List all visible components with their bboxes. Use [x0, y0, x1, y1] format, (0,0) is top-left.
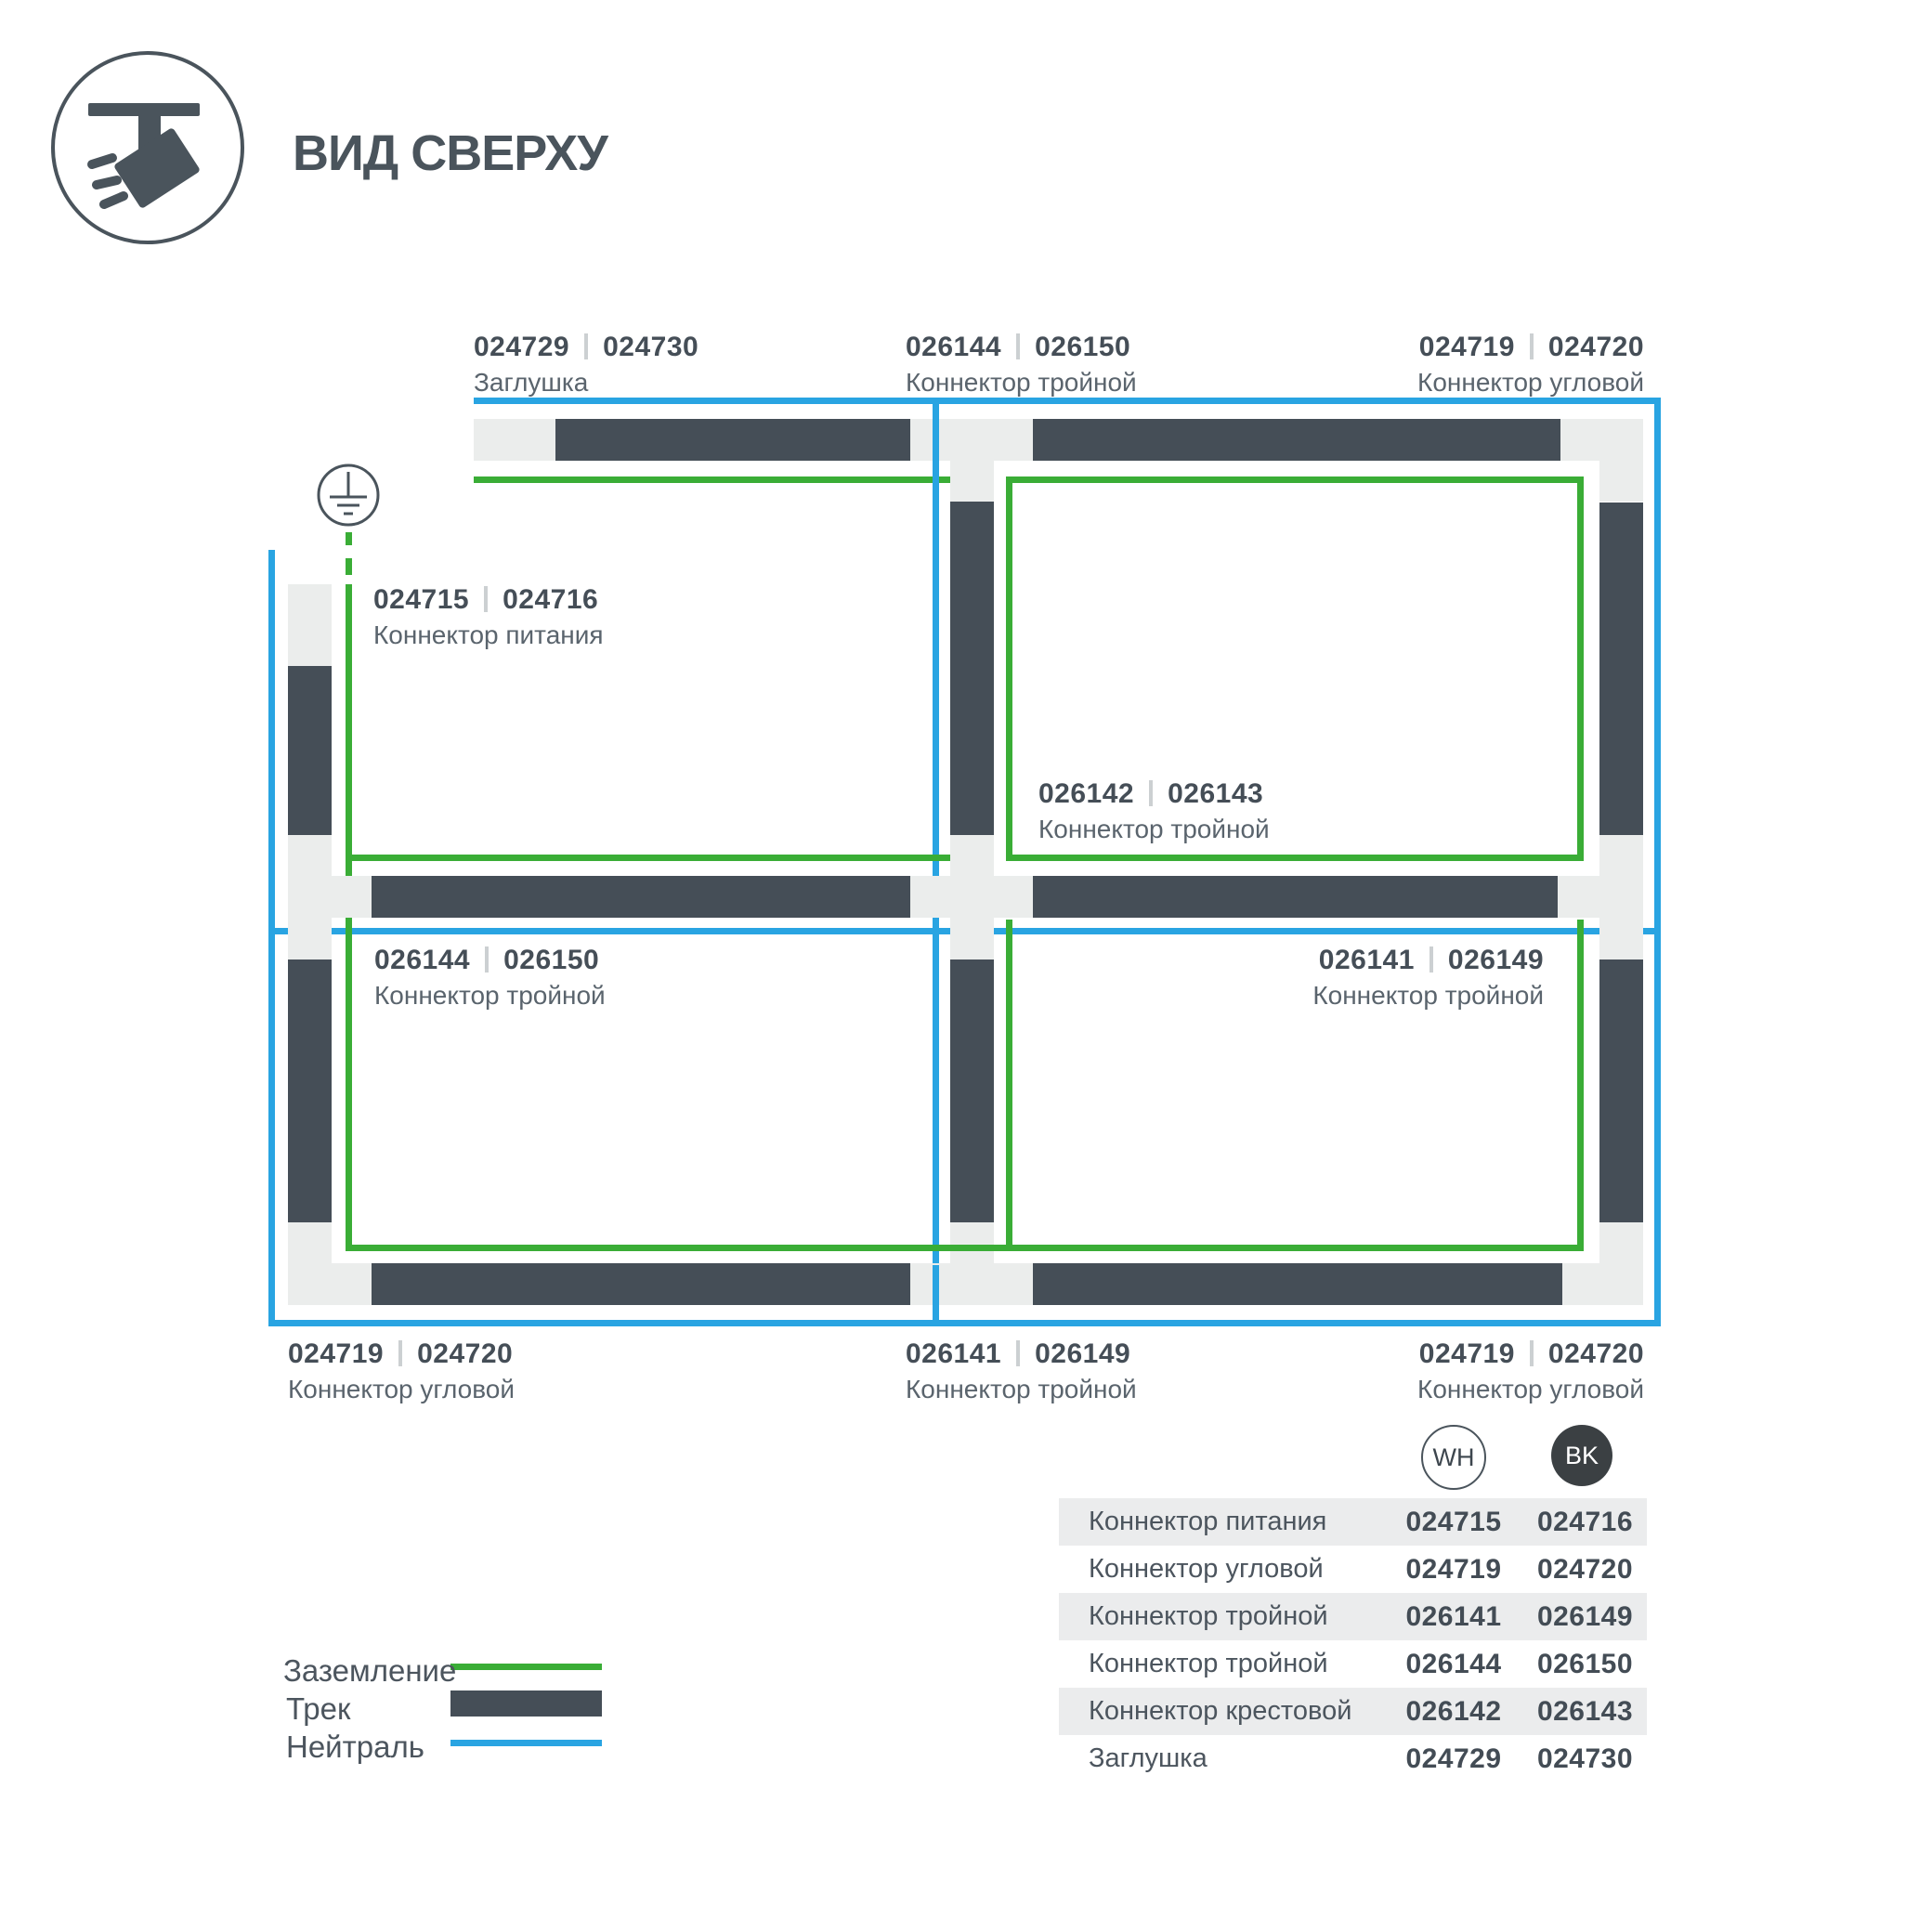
ground-line-over-bottom-stem: [950, 1245, 994, 1251]
page-title: ВИД СВЕРХУ: [293, 124, 607, 182]
track-segment: [555, 419, 910, 461]
track-segment: [1599, 503, 1643, 835]
ground-spine-vertical: [346, 584, 352, 1251]
neutral-line-over-top-connector: [933, 419, 939, 502]
label-t-connector-bottom: 026141026149 Коннектор тройной: [906, 1338, 1137, 1405]
t-connector-top: [910, 419, 1033, 461]
legend-ground-label: Заземление: [283, 1653, 456, 1689]
track-segment: [950, 959, 994, 1222]
legend-neutral-swatch: [450, 1740, 602, 1746]
label-corner-connector-bottomright: 024719024720 Коннектор угловой: [1417, 1338, 1644, 1405]
label-t-connector-top: 026144026150 Коннектор тройной: [906, 331, 1137, 398]
table-row: Коннектор питания 024715 024716: [1059, 1498, 1647, 1546]
label-cross-connector: 026142026143 Коннектор тройной: [1038, 777, 1270, 845]
table-row: Заглушка 024729 024730: [1059, 1735, 1647, 1782]
corner-connector-bottomleft: [288, 1222, 332, 1305]
earth-ground-icon: [316, 463, 381, 528]
label-name: Коннектор угловой: [1417, 1374, 1644, 1405]
label-codes: 024715024716: [373, 583, 604, 617]
label-codes: 024719024720: [288, 1338, 515, 1371]
ground-dash-1: [346, 532, 352, 545]
neutral-line-top: [474, 398, 1661, 404]
neutral-line-center-vertical: [933, 398, 939, 1326]
label-corner-connector-bottomleft: 024719024720 Коннектор угловой: [288, 1338, 515, 1405]
ground-line-bottomcell-right-vertical: [1577, 920, 1584, 1251]
code-separator: [1429, 946, 1433, 973]
t-connector-right-stem: [1558, 876, 1599, 918]
track-segment: [372, 876, 910, 918]
table-row: Коннектор крестовой 026142 026143: [1059, 1688, 1647, 1735]
track-segment: [1033, 419, 1560, 461]
legend-track-swatch: [450, 1690, 602, 1717]
table-row: Коннектор тройной 026144 026150: [1059, 1640, 1647, 1688]
label-codes: 026142026143: [1038, 777, 1270, 811]
corner-connector-bottomright: [1599, 1222, 1643, 1305]
legend-track-label: Трек: [286, 1691, 350, 1727]
variant-bk-badge: BK: [1551, 1425, 1612, 1486]
label-corner-connector-topright: 024719024720 Коннектор угловой: [1417, 331, 1644, 398]
label-name: Коннектор тройной: [906, 367, 1137, 398]
t-connector-right: [1599, 835, 1643, 959]
neutral-line-left: [268, 550, 275, 1326]
corner-connector-topright-leg: [1599, 461, 1643, 502]
corner-connector-topright: [1560, 419, 1643, 461]
code-separator: [1016, 1340, 1020, 1366]
code-separator: [1530, 333, 1534, 359]
corner-connector-bottomright-arm: [1562, 1263, 1599, 1305]
label-end-cap: 024729024730 Заглушка: [474, 331, 698, 398]
track-segment: [372, 1263, 910, 1305]
label-name: Коннектор тройной: [1038, 814, 1270, 845]
label-codes: 026144026150: [906, 331, 1137, 364]
code-separator: [1149, 780, 1153, 806]
neutral-line-right: [1654, 398, 1661, 1326]
neutral-line-over-bottom-connector: [933, 1265, 939, 1305]
neutral-line-bottom: [268, 1320, 1661, 1326]
track-segment: [288, 959, 332, 1222]
label-name: Коннектор угловой: [288, 1374, 515, 1405]
table-row: Коннектор тройной 026141 026149: [1059, 1593, 1647, 1640]
label-name: Коннектор питания: [373, 620, 604, 651]
label-t-connector-midleft: 026144026150 Коннектор тройной: [374, 944, 606, 1012]
track-segment: [1599, 959, 1643, 1222]
ground-line-bottomcell-left-vertical: [1006, 920, 1012, 1251]
label-name: Коннектор тройной: [374, 980, 606, 1012]
code-separator: [398, 1340, 402, 1366]
cross-connector-varm: [950, 835, 994, 959]
track-segment: [1033, 876, 1558, 918]
ground-dash-2: [346, 558, 352, 575]
variant-wh-badge: WH: [1421, 1425, 1486, 1490]
t-connector-bottom-stem: [950, 1222, 994, 1263]
label-codes: 026141026149: [906, 1338, 1137, 1371]
label-t-connector-midright: 026141026149 Коннектор тройной: [1312, 944, 1544, 1012]
code-separator: [485, 946, 489, 973]
corner-connector-bottomleft-arm: [332, 1263, 372, 1305]
track-segment: [950, 502, 994, 835]
parts-table: Коннектор питания 024715 024716 Коннекто…: [1059, 1498, 1647, 1782]
track-spotlight-icon: [46, 46, 250, 250]
label-name: Коннектор тройной: [1312, 980, 1544, 1012]
code-separator: [1016, 333, 1020, 359]
t-connector-left: [288, 835, 332, 959]
label-power-connector: 024715024716 Коннектор питания: [373, 583, 604, 651]
end-cap-connector: [474, 419, 555, 461]
code-separator: [584, 333, 588, 359]
power-connector: [288, 584, 332, 666]
table-row: Коннектор угловой 024719 024720: [1059, 1546, 1647, 1593]
t-connector-left-stem: [332, 876, 372, 918]
code-separator: [1530, 1340, 1534, 1366]
label-codes: 026144026150: [374, 944, 606, 977]
legend-ground-swatch: [450, 1664, 602, 1670]
label-name: Заглушка: [474, 367, 698, 398]
ground-line-topleft-bottom: [346, 855, 950, 861]
label-name: Коннектор тройной: [906, 1374, 1137, 1405]
track-segment: [288, 666, 332, 835]
label-codes: 024719024720: [1417, 331, 1644, 364]
label-codes: 024719024720: [1417, 1338, 1644, 1371]
label-codes: 024729024730: [474, 331, 698, 364]
t-connector-bottom: [910, 1263, 1033, 1305]
legend-neutral-label: Нейтраль: [286, 1730, 424, 1765]
t-connector-top-stem: [950, 461, 994, 502]
code-separator: [484, 586, 488, 612]
track-segment: [1033, 1263, 1562, 1305]
label-name: Коннектор угловой: [1417, 367, 1644, 398]
label-codes: 026141026149: [1312, 944, 1544, 977]
ground-line-topleft-top: [474, 476, 950, 483]
